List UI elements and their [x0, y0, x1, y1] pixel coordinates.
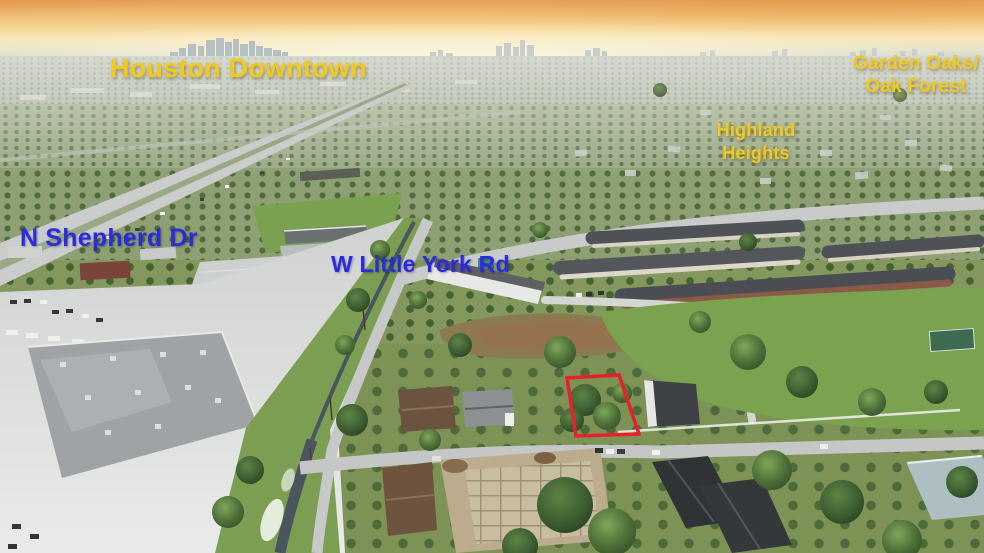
- label-highland-heights: Highland Heights: [698, 119, 814, 165]
- label-garden-oaks-line1: Garden Oaks/: [850, 52, 982, 75]
- label-garden-oaks: Garden Oaks/ Oak Forest: [850, 52, 982, 98]
- label-n-shepherd-dr: N Shepherd Dr: [20, 224, 198, 253]
- label-garden-oaks-line2: Oak Forest: [850, 75, 982, 98]
- aerial-photo: Houston Downtown Garden Oaks/ Oak Forest…: [0, 0, 984, 553]
- label-highland-line1: Highland: [698, 119, 814, 142]
- office-building-east-of-parcel: [644, 380, 700, 427]
- label-w-little-york-rd: W Little York Rd: [331, 251, 510, 278]
- street-houses: [398, 386, 515, 432]
- label-houston-downtown: Houston Downtown: [110, 53, 367, 84]
- foreground-street: [300, 443, 984, 468]
- label-highland-line2: Heights: [698, 142, 814, 165]
